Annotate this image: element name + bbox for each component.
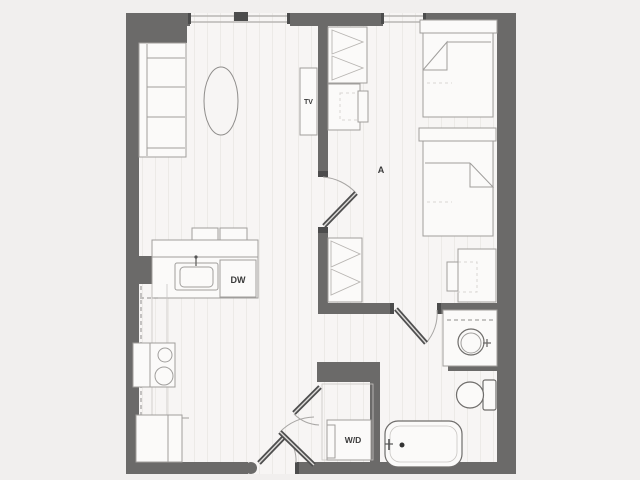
jamb-bedroom-bottom — [318, 227, 328, 233]
vanity — [443, 310, 497, 366]
jamb-entry-right — [295, 462, 299, 474]
jamb-bath-left — [390, 303, 394, 314]
closet-top — [328, 27, 367, 83]
washer-dryer: W/D — [327, 420, 371, 460]
wall-right-exterior — [497, 13, 516, 474]
refrigerator — [136, 415, 189, 462]
headboard — [419, 128, 496, 141]
wall-laundry-top — [317, 362, 380, 382]
washer-dryer-label: W/D — [345, 435, 362, 445]
mattress — [423, 141, 493, 236]
toilet — [457, 380, 497, 410]
bed-2 — [419, 128, 496, 236]
bed-1 — [420, 20, 497, 117]
wall-divider-upper — [318, 26, 328, 177]
floor-plan: TV DW — [0, 0, 640, 480]
wall-top-b — [290, 13, 383, 26]
wall-hall-bath-left — [318, 303, 393, 314]
closet-bottom — [328, 238, 362, 302]
toilet-tank — [483, 380, 496, 410]
window-tick — [188, 13, 191, 24]
wall-left-exterior — [126, 13, 139, 474]
toilet-bowl — [457, 382, 484, 408]
window-mullion-mark — [234, 12, 248, 21]
headboard — [420, 20, 497, 33]
mattress — [423, 33, 493, 117]
dishwasher-label: DW — [231, 275, 246, 285]
bar-stool — [192, 228, 218, 240]
bathtub — [385, 421, 462, 467]
oval-table — [204, 67, 238, 135]
wall-left-pilaster — [139, 256, 152, 284]
dishwasher: DW — [220, 260, 256, 297]
range-stove — [133, 343, 175, 387]
wall-divider-lower — [318, 227, 328, 303]
desk-chair — [358, 91, 368, 122]
tv-label: TV — [304, 99, 313, 106]
sofa — [139, 43, 186, 157]
jamb-bedroom-top — [318, 171, 328, 177]
bedroom-label: A — [378, 165, 385, 175]
bar-stool — [220, 228, 247, 240]
tub-drain-icon — [400, 443, 405, 448]
wall-bottom-a-endcap — [245, 462, 257, 474]
wall-top-a — [126, 13, 190, 26]
desk-chair — [447, 262, 458, 291]
window-tick — [287, 13, 290, 24]
window-tick — [381, 13, 384, 24]
tv-unit: TV — [300, 68, 317, 135]
wall-bottom-a — [126, 462, 248, 474]
faucet-icon — [194, 255, 197, 258]
